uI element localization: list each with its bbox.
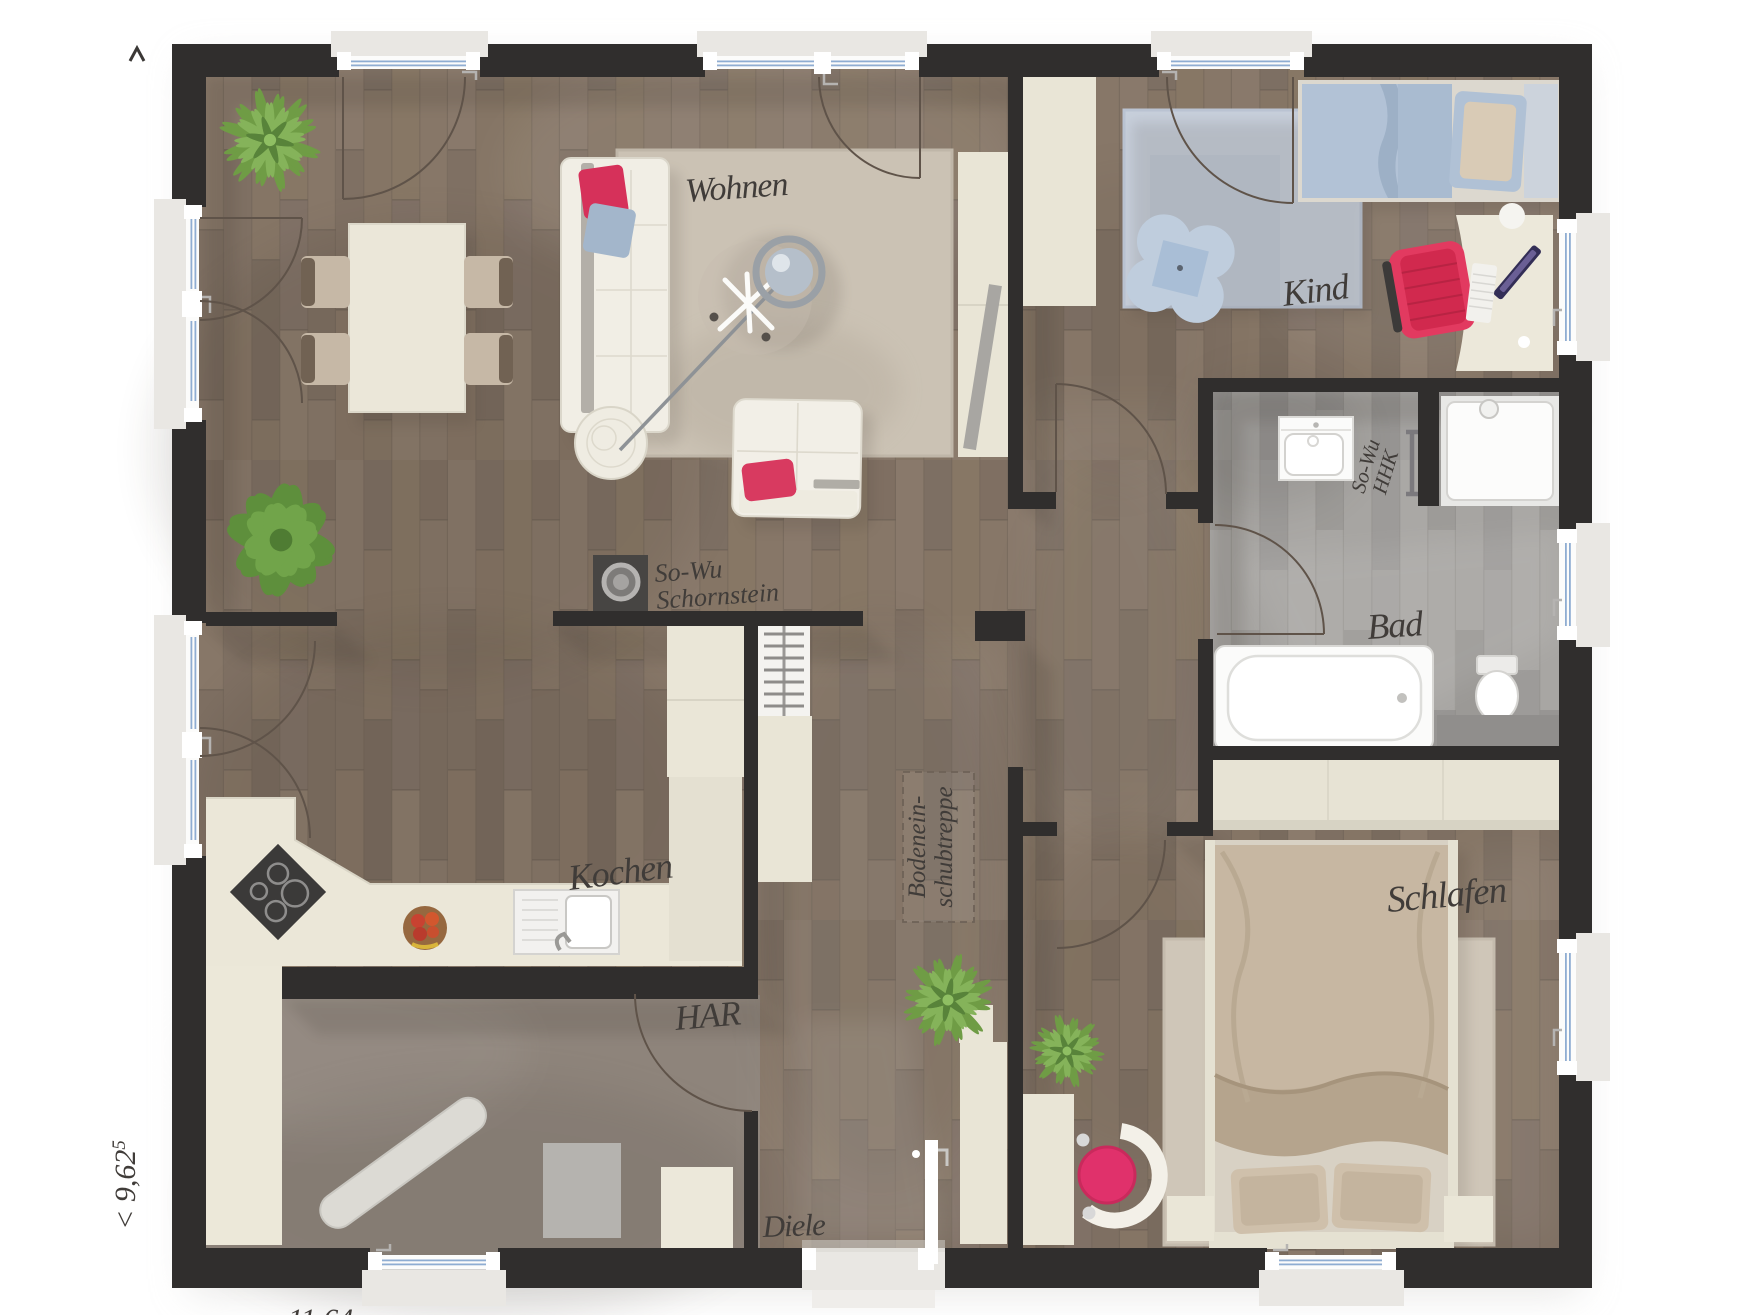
svg-text:schubtreppe: schubtreppe <box>931 786 958 907</box>
svg-text:Kind: Kind <box>1279 266 1352 314</box>
svg-text:Wohnen: Wohnen <box>684 166 789 210</box>
svg-text:Bodenein-: Bodenein- <box>904 796 931 899</box>
svg-text:HAR: HAR <box>672 993 742 1038</box>
svg-text:Diele: Diele <box>761 1207 827 1244</box>
svg-text:Bad: Bad <box>1366 603 1426 647</box>
svg-text:11,64: 11,64 <box>288 1303 353 1315</box>
svg-text:< 9,625: < 9,625 <box>109 1140 142 1230</box>
